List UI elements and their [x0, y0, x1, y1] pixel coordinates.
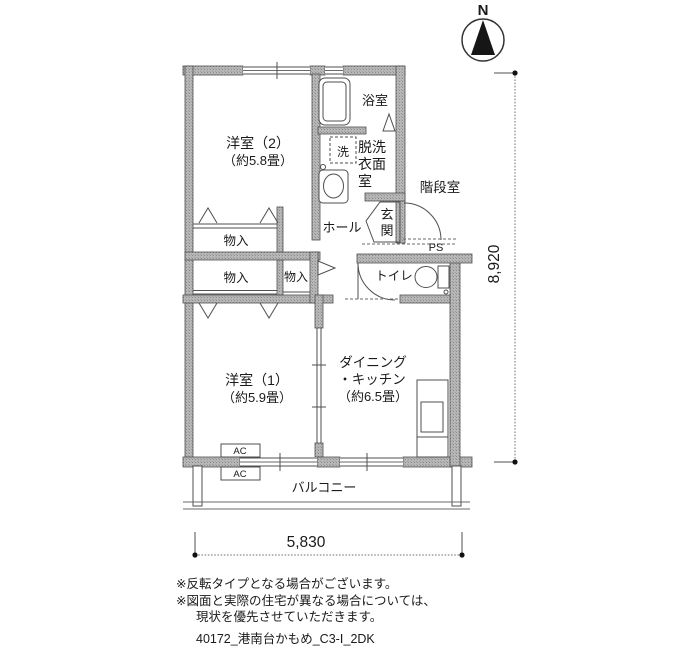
- dining-kitchen-label-line1: ダイニング: [339, 355, 407, 370]
- plan-id: 40172_港南台かもめ_C3-Ⅰ_2DK: [196, 631, 375, 646]
- bedroom1-size: （約5.9畳）: [222, 390, 292, 405]
- window-south-right: [340, 453, 403, 471]
- powder-room-label-row3: 室: [358, 173, 372, 189]
- north-compass-icon: N: [462, 2, 504, 61]
- bedroom2-label: 洋室（2）: [226, 135, 290, 151]
- floor-plan-page: N 8,920 5,830 洋室（2） （約5.8畳） 浴室 洗 脱洗 衣面 室…: [0, 0, 700, 650]
- compass-n-label: N: [478, 2, 489, 19]
- washer-label: 洗: [337, 145, 349, 159]
- dining-kitchen-size: （約6.5畳）: [338, 389, 408, 404]
- entrance-door: [404, 203, 441, 240]
- dining-kitchen-label-line2: ・キッチン: [338, 372, 406, 387]
- bath-label: 浴室: [362, 93, 388, 108]
- closet-upper-label: 物入: [223, 234, 249, 248]
- dimension-vertical: 8,920: [486, 70, 518, 464]
- bath-door-mark: [383, 114, 395, 131]
- kitchen-counter: [417, 380, 448, 457]
- stairwell-label: 階段室: [420, 179, 461, 195]
- balcony-label: バルコニー: [292, 480, 357, 495]
- dimension-horizontal: 5,830: [192, 532, 464, 558]
- entrance-label-char1: 玄: [380, 207, 393, 222]
- note-line-2: ※図面と実際の住宅が異なる場合については、: [176, 593, 436, 608]
- window-bath: [325, 66, 343, 75]
- closet-small-label: 物入: [284, 270, 308, 284]
- ac2-label: AC: [233, 469, 246, 480]
- footnotes: ※反転タイプとなる場合がございます。 ※図面と実際の住宅が異なる場合については、…: [176, 576, 436, 646]
- bedroom2-size: （約5.8畳）: [223, 153, 293, 168]
- entrance-label-char2: 関: [380, 223, 393, 238]
- powder-room-label-row2: 衣面: [358, 156, 386, 172]
- toilet-label: トイレ: [375, 269, 413, 283]
- bedroom1-label: 洋室（1）: [225, 372, 289, 388]
- dimension-height-value: 8,920: [486, 244, 503, 283]
- hall-label: ホール: [322, 220, 361, 235]
- note-line-3: 現状を優先させていただきます。: [196, 610, 382, 624]
- closet-small-door-mark: [318, 261, 335, 275]
- closet-front-upper: [193, 208, 278, 228]
- toilet-bowl: [415, 266, 449, 294]
- powder-room-label-row1: 脱洗: [358, 139, 386, 155]
- sliding-partition: [312, 328, 326, 443]
- window-north-large: [243, 62, 310, 79]
- dimension-width-value: 5,830: [287, 534, 326, 551]
- closet-lower-label: 物入: [223, 271, 249, 285]
- floor-plan-drawing: N 8,920 5,830 洋室（2） （約5.8畳） 浴室 洗 脱洗 衣面 室…: [0, 0, 700, 650]
- bathtub: [319, 78, 350, 125]
- ac1-label: AC: [233, 446, 246, 457]
- note-line-1: ※反転タイプとなる場合がございます。: [176, 576, 397, 591]
- pipe-space-label: PS: [429, 242, 444, 254]
- wash-basin: [319, 165, 348, 204]
